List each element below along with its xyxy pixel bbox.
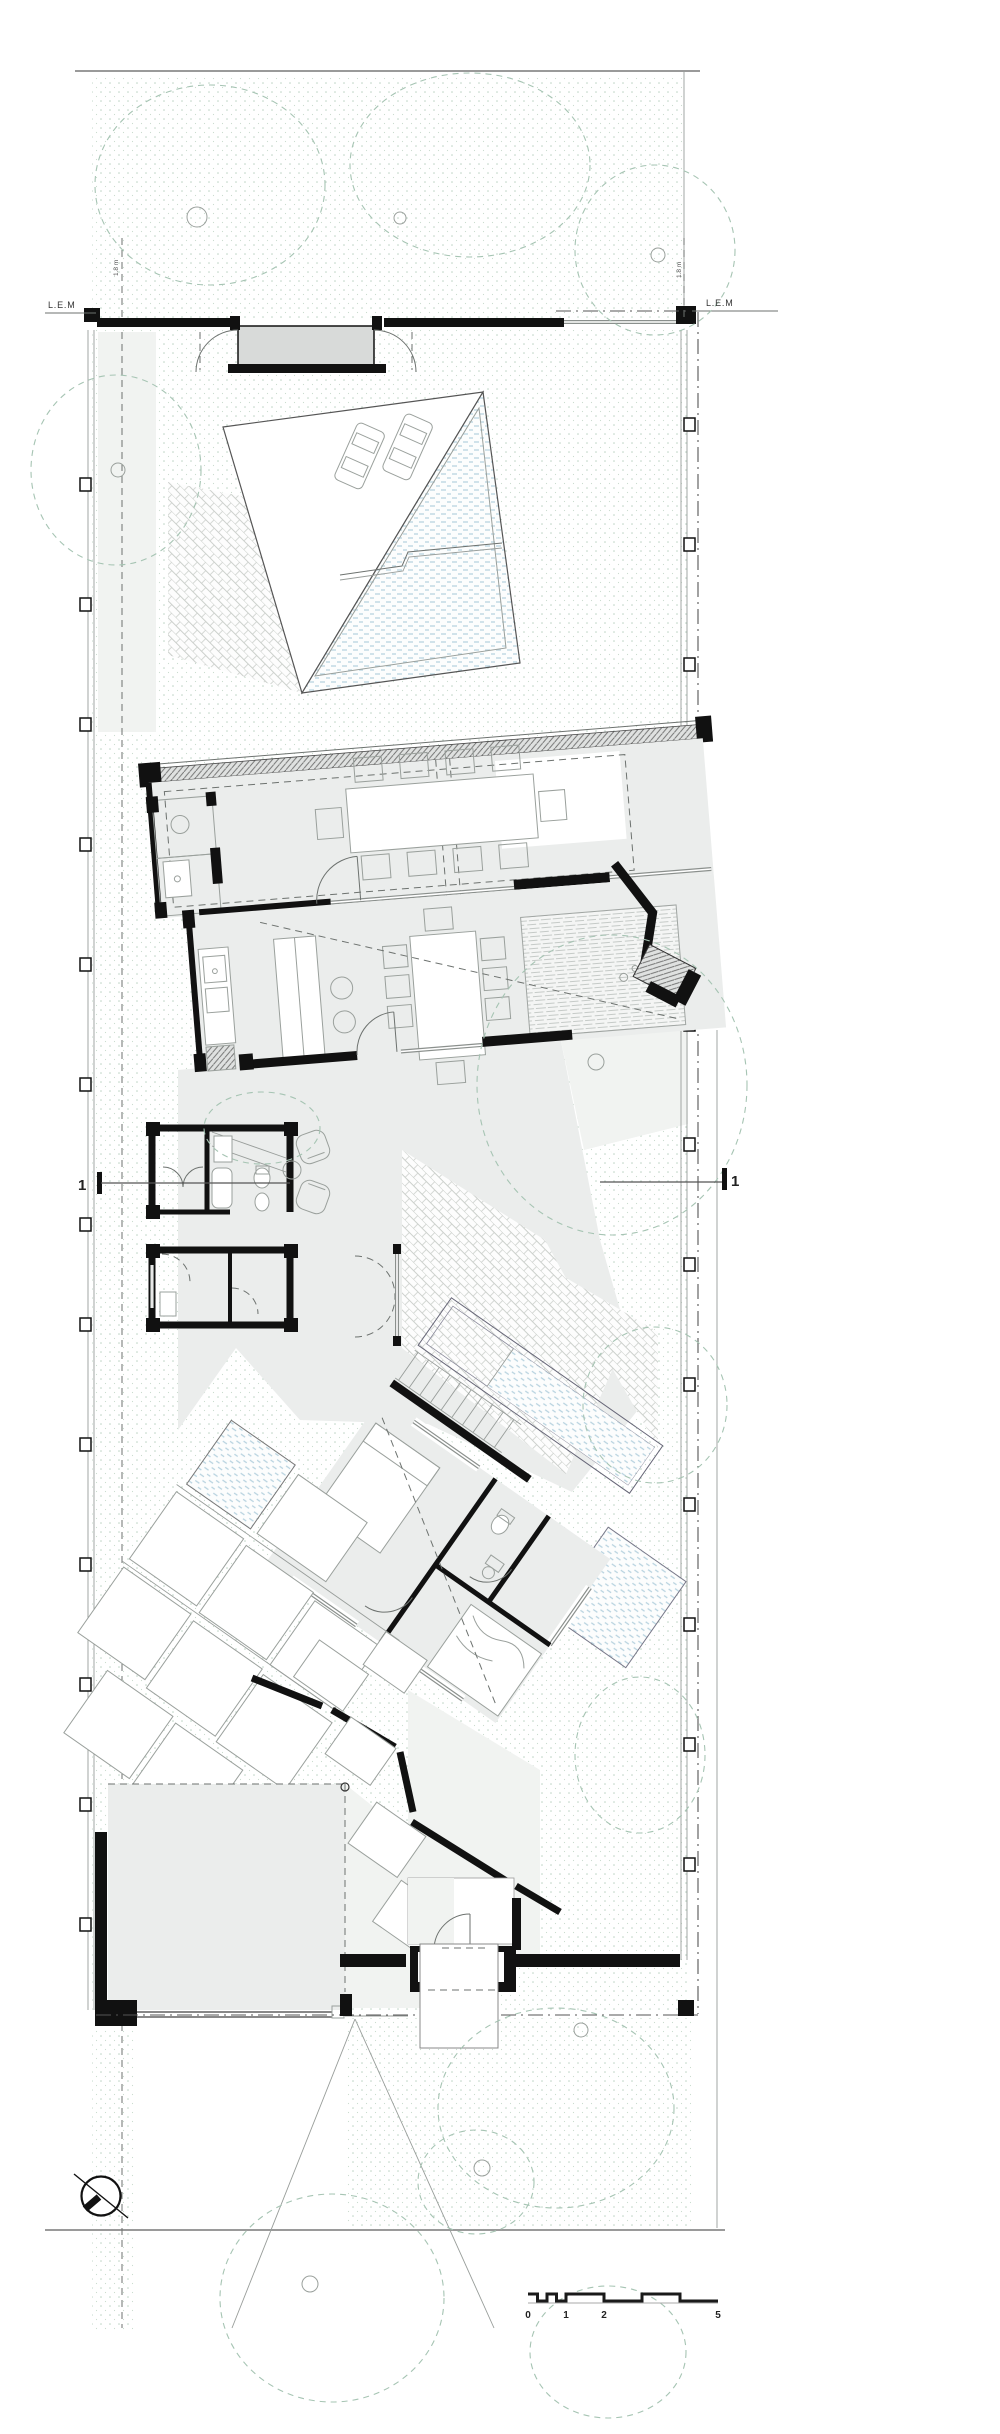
bidet-icon [255,1193,269,1211]
boundary-label-right: L.E.M [706,298,734,308]
site-plan-drawing: 1 1 L.E.M L.E.M 1.8 m 1.8 m 0 1 2 5 [0,0,1000,2434]
section-label-right: 1 [731,1173,739,1190]
scale-label-2: 2 [601,2310,607,2321]
boundary-post [678,2000,694,2016]
corner-post-left [84,308,100,322]
sink-icon [214,1136,232,1162]
scale-label-0: 0 [525,2310,531,2321]
scale-label-5: 5 [715,2310,721,2321]
setback-label-left: 1.8 m [113,260,120,276]
scale-bar: 0 1 2 5 [525,2294,721,2321]
site-plan-sheet: 1 1 L.E.M L.E.M 1.8 m 1.8 m 0 1 2 5 [0,0,1000,2434]
setback-label-right: 1.8 m [676,262,683,278]
bathtub-icon [212,1168,232,1208]
entry-walkway [420,1944,498,2048]
corner-post-right [676,306,696,324]
scale-label-1: 1 [563,2310,569,2321]
boundary-label-left: L.E.M [48,300,76,310]
section-label-left: 1 [78,1177,86,1194]
